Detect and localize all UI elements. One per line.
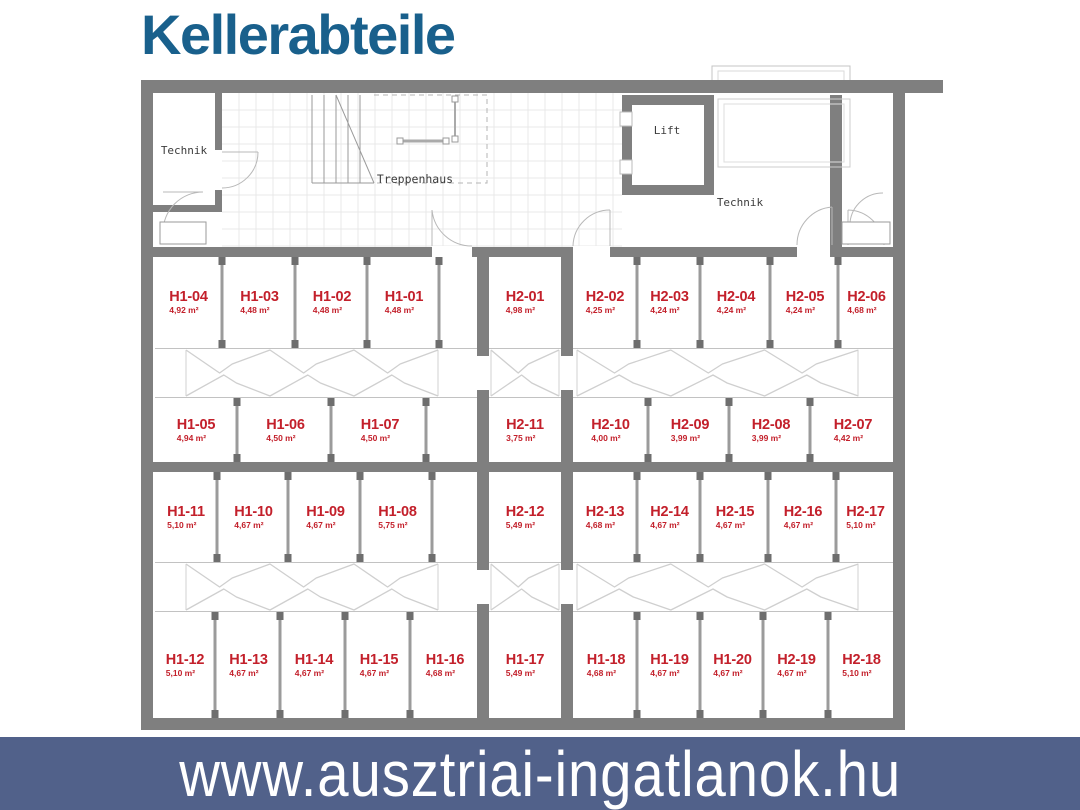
unit-id: H1-06: [266, 418, 305, 433]
unit-id: H1-08: [378, 505, 417, 520]
unit-H2-10: H2-104,00 m²: [573, 398, 648, 462]
unit-area: 4,42 m²: [834, 433, 863, 443]
unit-H1-14: H1-144,67 m²: [283, 612, 345, 718]
unit-id: H2-15: [716, 505, 755, 520]
unit-id: H2-17: [846, 505, 885, 520]
unit-id: H1-18: [587, 653, 626, 668]
unit-H2-15: H2-154,67 m²: [702, 472, 768, 562]
unit-H2-12: H2-125,49 m²: [489, 472, 561, 562]
unit-area: 4,67 m²: [713, 668, 742, 678]
unit-id: H2-09: [671, 418, 710, 433]
unit-area: 4,67 m²: [295, 668, 324, 678]
unit-area: 4,68 m²: [847, 305, 876, 315]
unit-area: 4,67 m²: [784, 520, 813, 530]
unit-id: H1-17: [506, 653, 545, 668]
unit-H2-16: H2-164,67 m²: [770, 472, 836, 562]
stairwell-tiles: [222, 93, 622, 247]
unit-area: 3,75 m²: [506, 433, 535, 443]
unit-id: H1-13: [229, 653, 268, 668]
unit-H1-16: H1-164,68 m²: [413, 612, 477, 718]
unit-H1-11: H1-115,10 m²: [155, 472, 217, 562]
unit-H1-06: H1-064,50 m²: [240, 398, 331, 462]
unit-id: H2-12: [506, 505, 545, 520]
unit-H2-14: H2-144,67 m²: [639, 472, 700, 562]
unit-H2-03: H2-034,24 m²: [639, 257, 700, 348]
unit-H1-18: H1-184,68 m²: [575, 612, 637, 718]
door-arcs: [163, 150, 884, 246]
unit-id: H1-02: [313, 290, 352, 305]
unit-area: 4,94 m²: [177, 433, 206, 443]
wall-niches: [160, 222, 890, 244]
unit-id: H1-10: [234, 505, 273, 520]
room-treppenhaus: Treppenhaus: [330, 172, 500, 186]
website-url: www.ausztriai-ingatlanok.hu: [179, 737, 901, 810]
unit-area: 4,68 m²: [587, 668, 616, 678]
unit-H1-15: H1-154,67 m²: [348, 612, 410, 718]
unit-id: H2-10: [591, 418, 630, 433]
unit-area: 4,67 m²: [650, 668, 679, 678]
unit-area: 5,10 m²: [167, 520, 196, 530]
unit-id: H2-08: [752, 418, 791, 433]
unit-H1-02: H1-024,48 m²: [297, 257, 367, 348]
unit-area: 4,50 m²: [266, 433, 295, 443]
unit-id: H2-07: [834, 418, 873, 433]
unit-id: H2-13: [586, 505, 625, 520]
unit-id: H1-07: [361, 418, 400, 433]
unit-H1-09: H1-094,67 m²: [291, 472, 360, 562]
unit-area: 4,67 m²: [650, 520, 679, 530]
unit-id: H2-01: [506, 290, 545, 305]
top-band-walls: [153, 93, 893, 258]
unit-area: 3,99 m²: [671, 433, 700, 443]
unit-H2-02: H2-024,25 m²: [573, 257, 637, 348]
unit-id: H2-11: [506, 418, 544, 433]
unit-area: 5,10 m²: [846, 520, 875, 530]
unit-id: H1-05: [177, 418, 216, 433]
unit-area: 4,24 m²: [650, 305, 679, 315]
unit-H1-07: H1-074,50 m²: [334, 398, 426, 462]
unit-area: 5,10 m²: [166, 668, 195, 678]
unit-area: 4,67 m²: [777, 668, 806, 678]
unit-area: 4,67 m²: [229, 668, 258, 678]
unit-H2-09: H2-093,99 m²: [651, 398, 729, 462]
unit-id: H1-01: [385, 290, 424, 305]
unit-H1-20: H1-204,67 m²: [702, 612, 763, 718]
unit-area: 5,49 m²: [506, 520, 535, 530]
unit-H2-11: H2-113,75 m²: [489, 398, 561, 462]
unit-id: H2-06: [847, 290, 886, 305]
unit-area: 5,49 m²: [506, 668, 535, 678]
unit-H1-12: H1-125,10 m²: [155, 612, 215, 718]
unit-id: H1-04: [169, 290, 208, 305]
unit-id: H1-12: [166, 653, 205, 668]
unit-area: 4,98 m²: [506, 305, 535, 315]
unit-area: 4,24 m²: [786, 305, 815, 315]
unit-area: 4,50 m²: [361, 433, 390, 443]
unit-area: 3,99 m²: [752, 433, 781, 443]
unit-H1-17: H1-175,49 m²: [489, 612, 561, 718]
unit-id: H1-14: [295, 653, 334, 668]
unit-id: H2-14: [650, 505, 689, 520]
unit-area: 4,24 m²: [717, 305, 746, 315]
unit-id: H1-16: [426, 653, 465, 668]
unit-H2-05: H2-054,24 m²: [772, 257, 838, 348]
unit-H2-17: H2-175,10 m²: [838, 472, 893, 562]
unit-H2-01: H2-014,98 m²: [489, 257, 561, 348]
unit-id: H2-16: [784, 505, 823, 520]
unit-H2-19: H2-194,67 m²: [765, 612, 828, 718]
footer-banner: www.ausztriai-ingatlanok.hu: [0, 737, 1080, 810]
unit-area: 4,00 m²: [591, 433, 620, 443]
unit-H2-04: H2-044,24 m²: [702, 257, 770, 348]
unit-area: 4,48 m²: [240, 305, 269, 315]
unit-area: 5,10 m²: [842, 668, 871, 678]
unit-id: H2-02: [586, 290, 625, 305]
room-technik-right: Technik: [705, 196, 775, 209]
unit-area: 4,67 m²: [716, 520, 745, 530]
floor-plan: Technik Treppenhaus Lift Technik H1-044,…: [0, 0, 1080, 810]
unit-H2-06: H2-064,68 m²: [840, 257, 893, 348]
unit-H1-10: H1-104,67 m²: [219, 472, 288, 562]
unit-H2-08: H2-083,99 m²: [732, 398, 810, 462]
unit-area: 4,25 m²: [586, 305, 615, 315]
page: Kellerabteile: [0, 0, 1080, 810]
unit-area: 4,67 m²: [360, 668, 389, 678]
unit-area: 5,75 m²: [378, 520, 407, 530]
unit-H1-05: H1-054,94 m²: [155, 398, 237, 462]
unit-area: 4,67 m²: [234, 520, 263, 530]
unit-area: 4,68 m²: [586, 520, 615, 530]
unit-id: H1-19: [650, 653, 689, 668]
unit-H2-13: H2-134,68 m²: [573, 472, 637, 562]
unit-id: H1-09: [306, 505, 345, 520]
unit-id: H2-05: [786, 290, 825, 305]
room-technik-left: Technik: [153, 144, 215, 157]
unit-id: H2-19: [777, 653, 816, 668]
unit-H1-04: H1-044,92 m²: [155, 257, 222, 348]
unit-id: H1-11: [167, 505, 205, 520]
unit-H2-07: H2-074,42 m²: [813, 398, 893, 462]
room-lift: Lift: [630, 124, 704, 137]
unit-area: 4,68 m²: [426, 668, 455, 678]
unit-id: H2-04: [717, 290, 756, 305]
unit-H1-08: H1-085,75 m²: [363, 472, 432, 562]
unit-id: H2-03: [650, 290, 689, 305]
unit-H1-03: H1-034,48 m²: [224, 257, 295, 348]
unit-H1-01: H1-014,48 m²: [369, 257, 439, 348]
lift-shaft: [620, 95, 714, 195]
unit-area: 4,48 m²: [385, 305, 414, 315]
unit-id: H2-18: [842, 653, 881, 668]
unit-H2-18: H2-185,10 m²: [830, 612, 893, 718]
unit-H1-13: H1-134,67 m²: [217, 612, 280, 718]
stairs: [312, 95, 487, 183]
unit-id: H1-15: [360, 653, 399, 668]
unit-area: 4,48 m²: [313, 305, 342, 315]
unit-H1-19: H1-194,67 m²: [639, 612, 700, 718]
unit-area: 4,92 m²: [169, 305, 198, 315]
unit-id: H1-03: [240, 290, 279, 305]
unit-id: H1-20: [713, 653, 752, 668]
unit-area: 4,67 m²: [306, 520, 335, 530]
